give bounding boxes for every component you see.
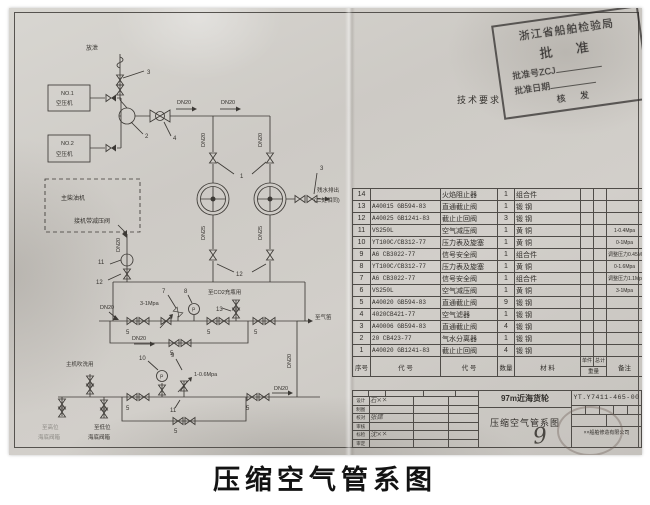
part-weight-unit [581,213,594,225]
table-row: 7 A6 CB3022-77 信号安全阀 1 组合件 调整压力1.1Mpa [353,273,643,285]
header-qty: 数量 [498,357,515,377]
part-code: VS250L [371,285,441,297]
part-remark [607,297,643,309]
part-no: 7 [353,273,371,285]
whistle-label: 至气笛 [315,313,332,321]
part-qty: 1 [498,309,515,321]
part-qty: 1 [498,285,515,297]
part-name: 信号安全阀 [441,273,498,285]
parts-header-row: 序号 代 号 代 号 数量 材 料 单件 总计 重量 备注 [353,357,643,377]
table-row: 14 火焰阻止器 1 组合件 [353,189,643,201]
sig-role-label: 审核 [353,423,370,430]
part-remark [607,189,643,201]
part-weight-unit [581,237,594,249]
part-weight-total [594,297,607,309]
part-weight-total [594,237,607,249]
header-weight-total: 总计 [594,357,606,366]
part-material: 组合件 [515,273,581,285]
table-row: 9 A6 CB3022-77 信号安全阀 1 组合件 调整压力0.45Mpa [353,249,643,261]
compressor-no1: NO.1 空压机 [48,85,90,111]
sig-header-cell [353,391,369,396]
sig-row: 制图 [353,406,478,414]
part-qty: 1 [498,249,515,261]
tech-req-title: 技术要求 [457,94,642,107]
sig-row: 审定 [353,440,478,447]
part-no: 3 [353,321,371,333]
header-weight-unit: 单件 [581,357,594,366]
dn20-label: DN20 [287,354,293,368]
table-row: 11 VS250L 空气减压阀 1 黄 铜 1-0.4Mpa [353,225,643,237]
part-weight-unit [581,345,594,357]
part-code: A6 CB3022-77 [371,249,441,261]
sig-role-label: 校对 [353,414,370,422]
part-no: 10 [353,237,371,249]
callout-11: 11 [170,408,177,414]
part-remark [607,333,643,345]
part-no: 11 [353,225,371,237]
callout-5: 5 [254,330,258,336]
part-code: A40015 GB594-83 [371,201,441,213]
sig-header-cell [369,391,385,396]
part-weight-total [594,285,607,297]
compressor-no2-label: 空压机 [56,150,73,158]
part-name: 压力表及旋塞 [441,237,498,249]
part-code: YT100C/CB312-77 [371,261,441,273]
part-weight-unit [581,333,594,345]
part-weight-total [594,261,607,273]
part-material: 锻 钢 [515,345,581,357]
callout-3: 3 [147,70,151,76]
part-remark [607,345,643,357]
dn25-label: DN25 [201,226,207,240]
header-code: 代 号 [371,357,441,377]
receiver-risers: DN20 DN20 1 [201,116,274,183]
callout-12: 12 [96,280,103,286]
part-qty: 1 [498,189,515,201]
co2-branch-label: 至CO2充瓶用 [208,288,241,296]
gauge-letter: P [192,308,196,314]
part-qty: 4 [498,345,515,357]
part-weight-total [594,201,607,213]
callout-3: 3 [320,166,324,172]
table-row: 8 YT100C/CB312-77 压力表及旋塞 1 黄 铜 0-1.6Mpa [353,261,643,273]
scanned-drawing-sheet: 放泄 3 NO.1 空压机 NO.2 空压机 2 [9,8,642,455]
dn20-riser-label: DN20 [258,133,264,147]
sig-header-cell [456,391,478,396]
callout-5: 5 [207,330,211,336]
part-code: A40020 GB594-83 [371,297,441,309]
dn25-label: DN25 [258,226,264,240]
part-name: 直通截止阀 [441,297,498,309]
table-row: 1 A40020 GB1241-83 截止止回阀 4 锻 钢 [353,345,643,357]
part-no: 12 [353,213,371,225]
part-weight-total [594,321,607,333]
air-filter: 4 [135,110,177,142]
part-name: 直通截止阀 [441,321,498,333]
part-remark: 0-1.6Mpa [607,261,643,273]
part-code: A40025 GB1241-83 [371,213,441,225]
header-remark: 备注 [607,357,643,377]
part-remark [607,321,643,333]
part-name: 信号安全阀 [441,249,498,261]
compressor-discharge-lines [90,95,121,152]
part-name: 气水分离器 [441,333,498,345]
part-no: 5 [353,297,371,309]
parts-table: 14 火焰阻止器 1 组合件 13 A40015 GB594-83 直通截止阀 … [352,188,642,377]
compressor-no2-number: NO.2 [61,141,74,147]
part-material: 锻 钢 [515,309,581,321]
technical-requirements: 技术要求 [365,94,642,109]
top-header-pipe: DN20 DN20 [170,100,270,116]
sig-row: 校对 张建 [353,414,478,423]
water-separator: 2 [119,108,149,140]
part-material: 黄 铜 [515,225,581,237]
part-weight-total [594,249,607,261]
part-weight-total [594,225,607,237]
callout-4: 4 [173,136,177,142]
piping-diagram: 放泄 3 NO.1 空压机 NO.2 空压机 2 [14,12,354,449]
part-qty: 4 [498,321,515,333]
part-weight-unit [581,285,594,297]
callout-1: 1 [240,174,244,180]
part-qty: 9 [498,297,515,309]
table-row: 2 20 CB423-77 气水分离器 1 锻 钢 [353,333,643,345]
low-chest-label-2: 海底阀箱 [88,433,111,441]
main-engine-branch: 主柴油机 接机带减压阀 DN20 11 12 [45,179,140,286]
photo-of-drawing: { "caption": "压缩空气管系图", "stamp": { "line… [0,0,650,505]
manifold-drop-pipe: DN20 [287,321,297,397]
part-code: YT100C/CB312-77 [371,237,441,249]
table-row: 4 4020CB421-77 空气滤器 1 锻 钢 [353,309,643,321]
callout-2: 2 [145,134,149,140]
callout-5: 5 [246,406,250,412]
part-no: 8 [353,261,371,273]
part-remark: 调整压力0.45Mpa [607,249,643,261]
round-company-stamp [557,406,623,455]
high-chest-label-1: 至高位 [42,423,59,431]
table-row: 10 YT100C/CB312-77 压力表及旋塞 1 黄 铜 0-1Mpa [353,237,643,249]
part-material: 黄 铜 [515,285,581,297]
part-code [371,189,441,201]
part-remark: 0-1Mpa [607,237,643,249]
part-name: 空气滤器 [441,309,498,321]
sig-role-label: 制图 [353,406,370,413]
sig-row: 设计 石×× [353,397,478,406]
part-code: A40006 GB594-83 [371,321,441,333]
part-no: 9 [353,249,371,261]
table-row: 12 A40025 GB1241-83 截止止回阀 3 锻 钢 [353,213,643,225]
part-code: A6 CB3022-77 [371,273,441,285]
part-qty: 3 [498,213,515,225]
callout-5: 5 [126,330,130,336]
reducer-branch-label: 接机带减压阀 [74,217,110,225]
part-weight-unit [581,261,594,273]
part-qty: 1 [498,261,515,273]
drain-label-2: (二处相同) [314,196,340,204]
sig-handwritten-name: 石×× [370,397,388,405]
callout-5: 5 [174,429,178,435]
table-row: 5 A40020 GB594-83 直通截止阀 9 锻 钢 [353,297,643,309]
vent-label: 放泄 [86,44,98,52]
compressor-no1-label: 空压机 [56,99,73,107]
part-no: 2 [353,333,371,345]
part-material: 锻 钢 [515,321,581,333]
sig-role-label: 标检 [353,431,370,439]
table-row: 3 A40006 GB594-83 直通截止阀 4 锻 钢 [353,321,643,333]
header-name: 代 号 [441,357,498,377]
callout-10: 10 [139,356,146,362]
part-material: 组合件 [515,189,581,201]
part-remark: 调整压力1.1Mpa [607,273,643,285]
part-name: 压力表及旋塞 [441,261,498,273]
part-material: 锻 钢 [515,201,581,213]
sig-header-cell [386,391,424,396]
drain-branch: 3 残水排出 (二处相同) [286,166,340,204]
part-no: 4 [353,309,371,321]
sig-handwritten-name: 沈×× [370,431,388,439]
low-chest-label-1: 至低位 [94,423,111,431]
part-name: 截止止回阀 [441,345,498,357]
part-material: 锻 钢 [515,213,581,225]
part-qty: 1 [498,273,515,285]
part-remark: 3-1Mpa [607,285,643,297]
dn20-riser-label: DN20 [201,133,207,147]
air-receiver-2 [254,183,286,215]
dn20-label: DN20 [132,336,146,342]
signature-pane: 设计 石×× 制图 校对 张建 审核 标检 沈×× 审定 [353,391,479,447]
bottom-manifold: 至高位 海底阀箱 主机吹洗用 至低位 海底阀箱 5 P 10 1-0.6Mpa [38,353,320,441]
callout-5: 5 [126,406,130,412]
table-row: 13 A40015 GB594-83 直通截止阀 1 锻 钢 [353,201,643,213]
header-weight: 单件 总计 重量 [581,357,606,376]
part-weight-total [594,273,607,285]
callout-12: 12 [236,272,243,278]
part-weight-unit [581,201,594,213]
part-weight-total [594,213,607,225]
part-code: A40020 GB1241-83 [371,345,441,357]
compressor-no1-number: NO.1 [61,91,74,97]
part-weight-unit [581,249,594,261]
high-chest-label-2: 海底阀箱 [38,433,61,441]
part-weight-total [594,333,607,345]
callout-11: 11 [98,260,105,266]
sig-rows: 设计 石×× 制图 校对 张建 审核 标检 沈×× 审定 [353,397,478,447]
sig-row: 标检 沈×× [353,431,478,440]
part-code: 4020CB421-77 [371,309,441,321]
part-name: 直通截止阀 [441,201,498,213]
part-weight-unit [581,309,594,321]
part-code: VS250L [371,225,441,237]
header-weight-label: 重量 [581,367,606,376]
part-remark [607,201,643,213]
part-weight-unit [581,321,594,333]
dn20-label: DN20 [274,386,288,392]
callout-9: 9 [171,353,175,359]
gauge-letter: P [160,375,164,381]
part-weight-total [594,189,607,201]
sig-handwritten-name: 张建 [370,414,383,421]
part-no: 13 [353,201,371,213]
main-engine-label: 主柴油机 [61,194,85,202]
header-material: 材 料 [515,357,581,377]
part-name: 截止止回阀 [441,213,498,225]
drawing-number: YT.Y7411-465-00 [572,391,641,406]
part-remark [607,213,643,225]
table-row: 6 VS250L 空气减压阀 1 黄 铜 3-1Mpa [353,285,643,297]
part-weight-unit [581,189,594,201]
part-weight-unit [581,297,594,309]
part-weight-unit [581,273,594,285]
sig-header-cell [424,391,456,396]
image-caption: 压缩空气管系图 [0,458,650,497]
part-qty: 1 [498,225,515,237]
pressure-range-1-06: 1-0.6Mpa [194,372,218,378]
part-remark [607,309,643,321]
handwritten-page-number: 9 [532,423,549,449]
dn20-label: DN20 [221,100,235,106]
sig-row: 审核 [353,423,478,431]
part-name: 空气减压阀 [441,285,498,297]
dn20-label: DN20 [177,100,191,106]
blow-through-label: 主机吹洗用 [66,360,94,368]
parts-rows: 14 火焰阻止器 1 组合件 13 A40015 GB594-83 直通截止阀 … [353,189,643,357]
air-receiver-1 [197,183,229,215]
dn20-label: DN20 [100,305,114,311]
callout-7: 7 [162,289,166,295]
part-weight-total [594,309,607,321]
part-weight-total [594,345,607,357]
compressor-no2: NO.2 空压机 [48,135,90,162]
part-remark: 1-0.4Mpa [607,225,643,237]
part-material: 锻 钢 [515,333,581,345]
sig-role-label: 设计 [353,397,370,405]
part-code: 20 CB423-77 [371,333,441,345]
part-weight-unit [581,225,594,237]
dn20-label: DN20 [116,238,122,252]
part-no: 1 [353,345,371,357]
part-name: 空气减压阀 [441,225,498,237]
pressure-range-3-1: 3-1Mpa [140,301,160,307]
part-material: 黄 铜 [515,261,581,273]
callout-8: 8 [184,289,188,295]
ship-name: 97m近海货轮 [479,391,571,408]
part-material: 黄 铜 [515,237,581,249]
part-no: 14 [353,189,371,201]
drain-label-1: 残水排出 [317,186,339,194]
part-material: 锻 钢 [515,297,581,309]
part-name: 火焰阻止器 [441,189,498,201]
part-qty: 1 [498,237,515,249]
part-material: 组合件 [515,249,581,261]
part-no: 6 [353,285,371,297]
part-qty: 1 [498,333,515,345]
part-qty: 1 [498,201,515,213]
header-no: 序号 [353,357,371,377]
sig-role-label: 审定 [353,440,370,447]
